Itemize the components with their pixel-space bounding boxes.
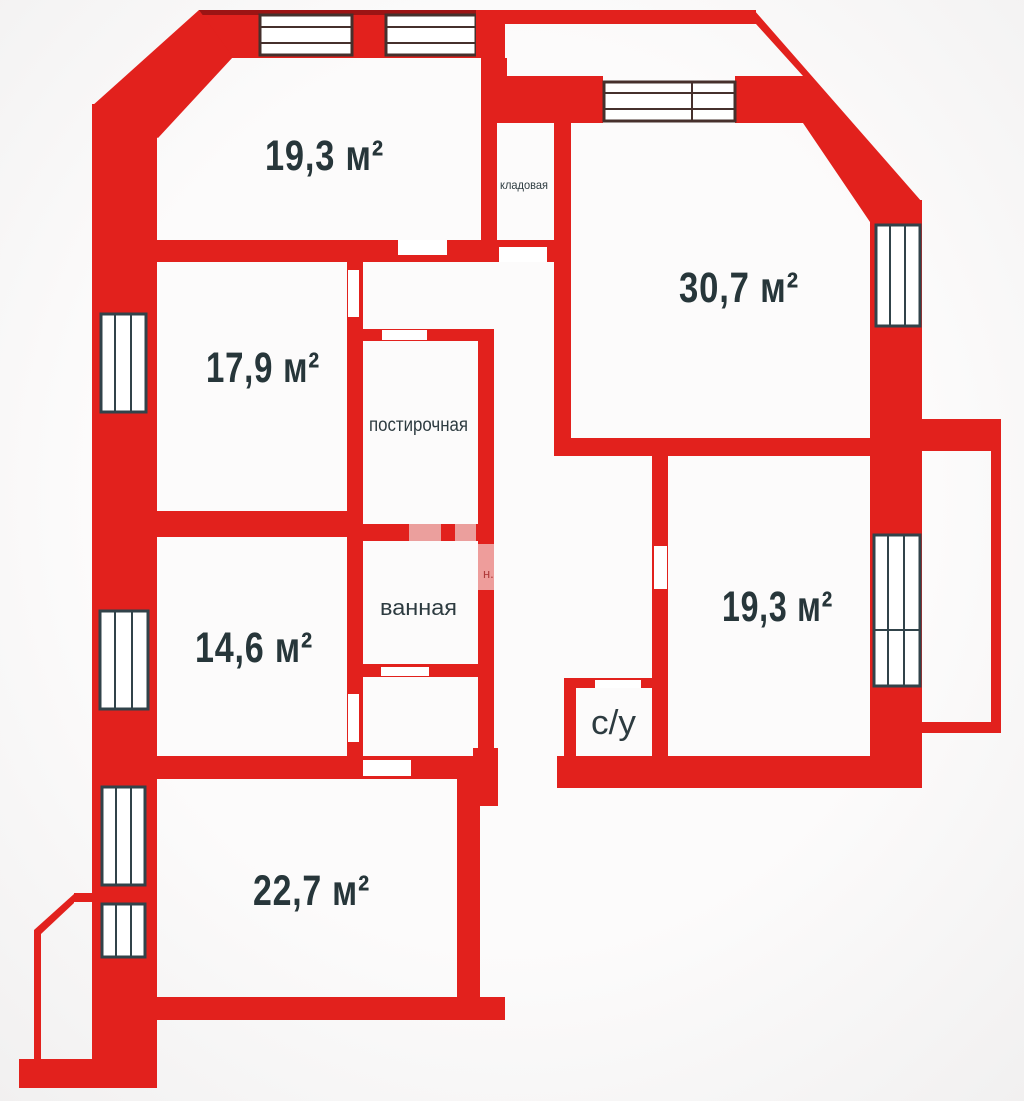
svg-text:с/у: с/у xyxy=(591,704,636,742)
svg-text:30,7 м²: 30,7 м² xyxy=(679,264,799,312)
svg-text:22,7 м²: 22,7 м² xyxy=(253,867,370,915)
svg-text:н.: н. xyxy=(483,566,494,581)
svg-text:кладовая: кладовая xyxy=(500,178,548,192)
svg-text:14,6 м²: 14,6 м² xyxy=(195,624,313,672)
svg-text:19,3 м²: 19,3 м² xyxy=(722,583,833,631)
svg-text:17,9 м²: 17,9 м² xyxy=(206,344,320,392)
svg-text:ванная: ванная xyxy=(380,595,457,620)
svg-text:19,3 м²: 19,3 м² xyxy=(265,132,384,180)
svg-text:постирочная: постирочная xyxy=(369,415,468,436)
